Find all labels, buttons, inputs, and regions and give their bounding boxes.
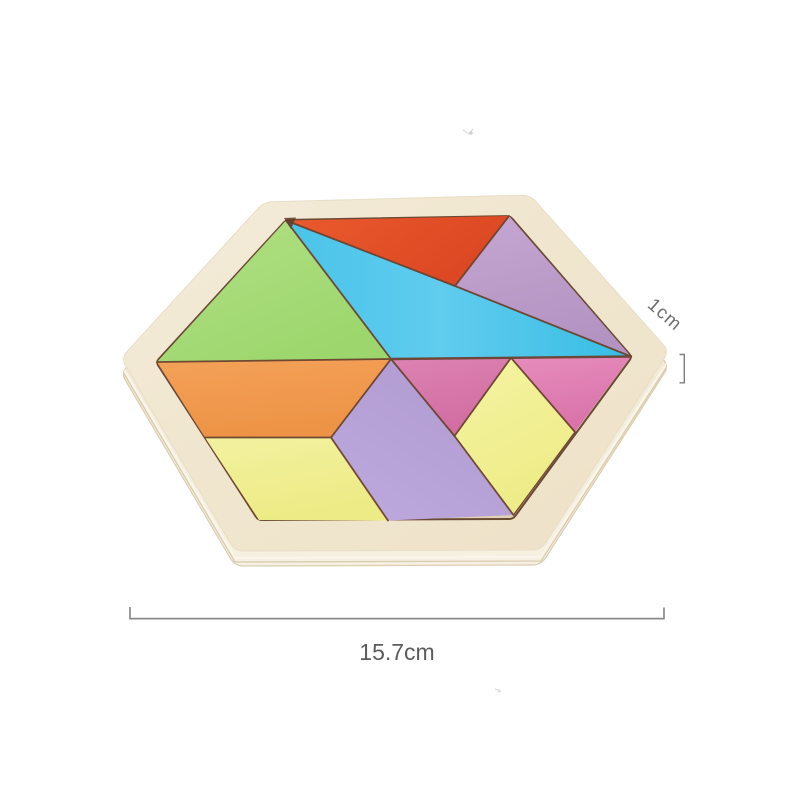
svg-text:15.7cm: 15.7cm [359,639,434,665]
